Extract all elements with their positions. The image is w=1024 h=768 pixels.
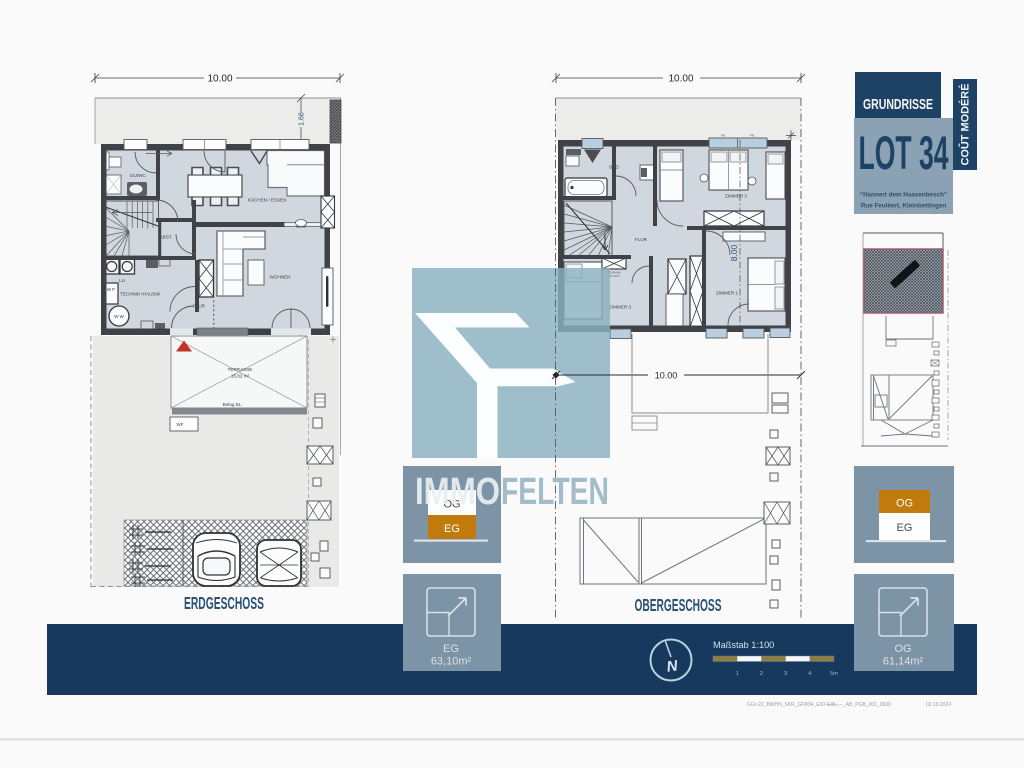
svg-text:FLUR: FLUR (635, 237, 648, 242)
svg-text:EG: EG (444, 523, 460, 535)
svg-text:OBERGESCHOSS: OBERGESCHOSS (635, 595, 722, 615)
svg-text:Rue Feulèert, Kleinbettingen: Rue Feulèert, Kleinbettingen (861, 203, 947, 210)
svg-text:WOHNEN: WOHNEN (270, 275, 291, 280)
svg-text:02.10.2024: 02.10.2024 (926, 702, 951, 708)
svg-text:Belag EL: Belag EL (223, 402, 242, 407)
svg-text:FN: FN (721, 134, 725, 138)
svg-text:IMMO: IMMO (415, 471, 500, 513)
svg-text:8.00: 8.00 (729, 244, 739, 261)
svg-text:W W: W W (114, 314, 124, 319)
svg-text:EG: EG (897, 522, 913, 534)
svg-text:BO 0075: BO 0075 (608, 274, 619, 278)
svg-text:WF: WF (176, 422, 183, 427)
svg-text:COÛT MODÉRÉ: COÛT MODÉRÉ (959, 84, 972, 166)
svg-text:LOT 34: LOT 34 (859, 126, 949, 179)
svg-text:61,14m²: 61,14m² (883, 656, 924, 668)
svg-text:OG: OG (894, 643, 911, 655)
svg-text:ABST.: ABST. (160, 235, 173, 240)
svg-text:Maßstab 1:100: Maßstab 1:100 (713, 640, 774, 650)
svg-text:OG: OG (896, 498, 913, 510)
svg-text:“Hannert dem Haasenbesch”: “Hannert dem Haasenbesch” (860, 192, 947, 199)
svg-text:1.68: 1.68 (299, 112, 306, 126)
svg-text:ZIMMER 2: ZIMMER 2 (725, 194, 747, 199)
svg-text:GGr-22_BWHN_SKR_GFB34_E30-E35_: GGr-22_BWHN_SKR_GFB34_E30-E35_ (747, 702, 839, 708)
svg-text:5m: 5m (830, 671, 838, 677)
svg-text:ZIMMER 3: ZIMMER 3 (609, 305, 631, 310)
svg-text:FLUR: FLUR (193, 304, 206, 309)
svg-text:EG: EG (443, 643, 459, 655)
svg-text:TERRASSE: TERRASSE (228, 367, 253, 372)
svg-text:———_AB_PGB_001_0500: ———_AB_PGB_001_0500 (828, 702, 891, 708)
svg-text:FN: FN (750, 134, 754, 138)
svg-text:GRUNDRISSE: GRUNDRISSE (863, 96, 933, 113)
svg-text:2: 2 (760, 671, 763, 677)
svg-text:KÜCHEN / ESSEN: KÜCHEN / ESSEN (248, 197, 287, 203)
svg-text:15,82 m²: 15,82 m² (231, 374, 250, 379)
svg-text:ZIMMER 1: ZIMMER 1 (716, 291, 738, 296)
svg-text:FELTEN: FELTEN (501, 471, 609, 513)
svg-text:DU/WC: DU/WC (130, 173, 146, 178)
svg-text:3: 3 (784, 671, 787, 677)
svg-text:10.00: 10.00 (655, 371, 678, 381)
svg-text:BAD: BAD (609, 165, 619, 170)
svg-text:1: 1 (736, 671, 739, 677)
svg-text:10.00: 10.00 (668, 74, 693, 85)
svg-text:LU: LU (119, 278, 125, 283)
svg-text:10.00: 10.00 (207, 74, 232, 85)
svg-text:63,10m²: 63,10m² (431, 656, 472, 668)
svg-text:ERDGESCHOSS: ERDGESCHOSS (184, 593, 264, 613)
svg-text:TECHNIK+HAUSW: TECHNIK+HAUSW (120, 292, 161, 297)
svg-text:W P: W P (107, 287, 115, 292)
